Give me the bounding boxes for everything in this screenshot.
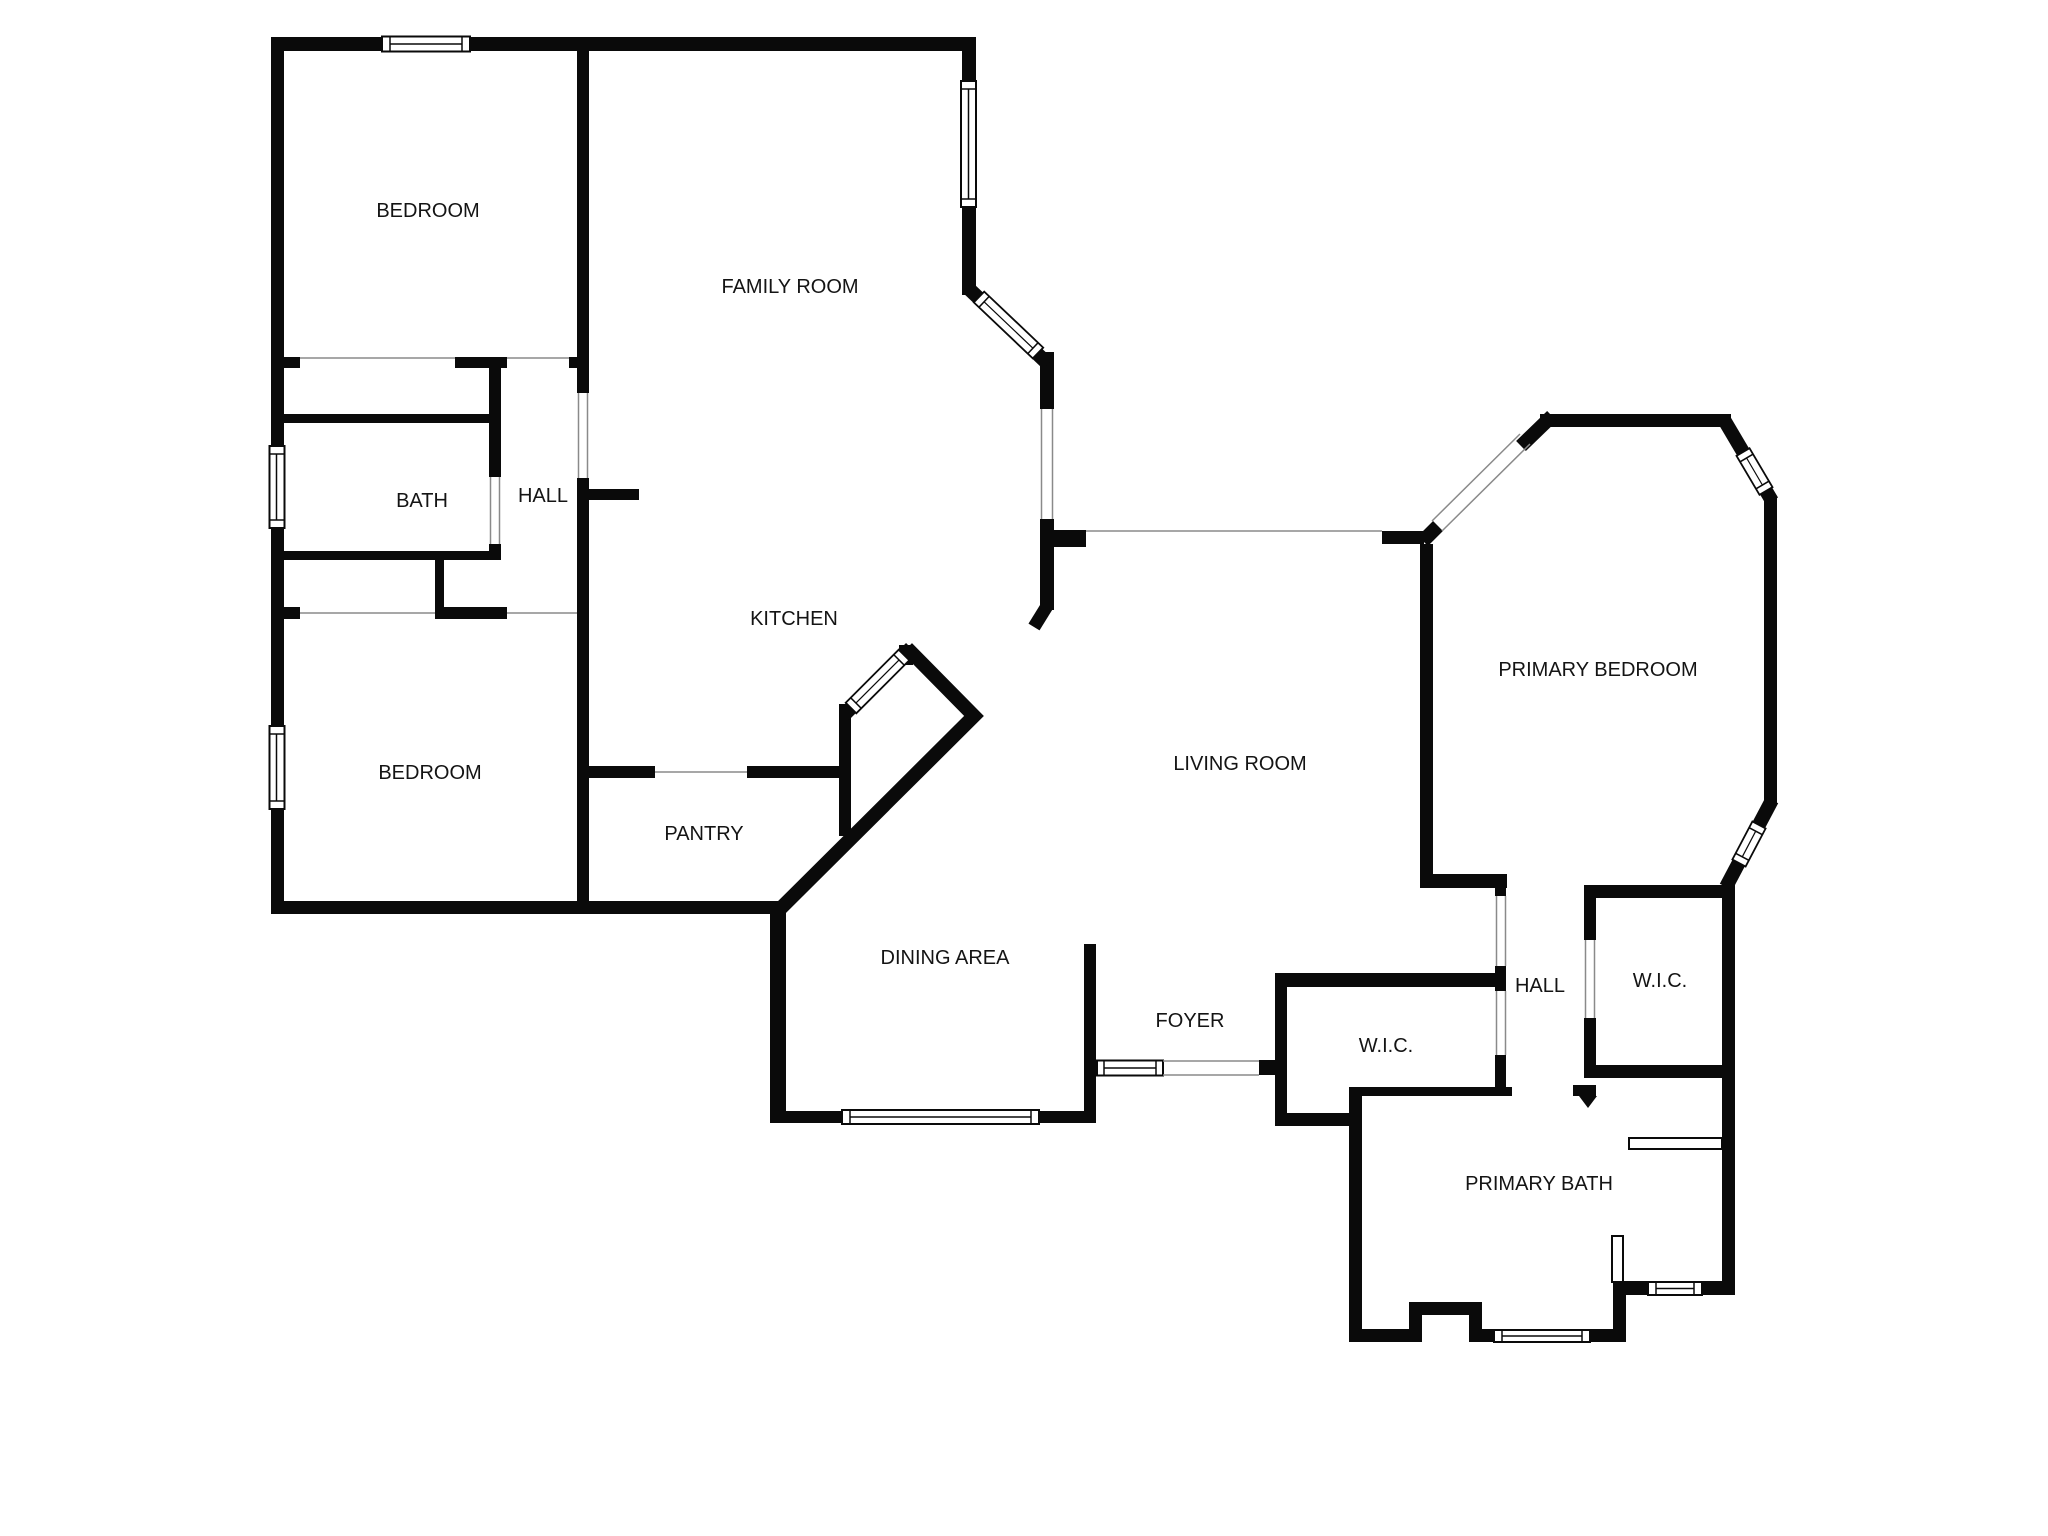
svg-text:KITCHEN: KITCHEN bbox=[750, 608, 838, 630]
svg-text:BEDROOM: BEDROOM bbox=[376, 200, 479, 222]
svg-text:FOYER: FOYER bbox=[1156, 1010, 1225, 1032]
svg-text:LIVING ROOM: LIVING ROOM bbox=[1173, 753, 1306, 775]
svg-text:BEDROOM: BEDROOM bbox=[378, 762, 481, 784]
svg-text:PRIMARY BEDROOM: PRIMARY BEDROOM bbox=[1498, 659, 1697, 681]
svg-text:PANTRY: PANTRY bbox=[664, 823, 743, 845]
svg-text:BATH: BATH bbox=[396, 490, 448, 512]
svg-text:HALL: HALL bbox=[518, 485, 568, 507]
svg-text:DINING AREA: DINING AREA bbox=[881, 947, 1011, 969]
svg-text:FAMILY ROOM: FAMILY ROOM bbox=[721, 276, 858, 298]
svg-text:HALL: HALL bbox=[1515, 975, 1565, 997]
svg-text:W.I.C.: W.I.C. bbox=[1633, 970, 1687, 992]
svg-text:W.I.C.: W.I.C. bbox=[1359, 1035, 1413, 1057]
svg-text:PRIMARY BATH: PRIMARY BATH bbox=[1465, 1173, 1613, 1195]
